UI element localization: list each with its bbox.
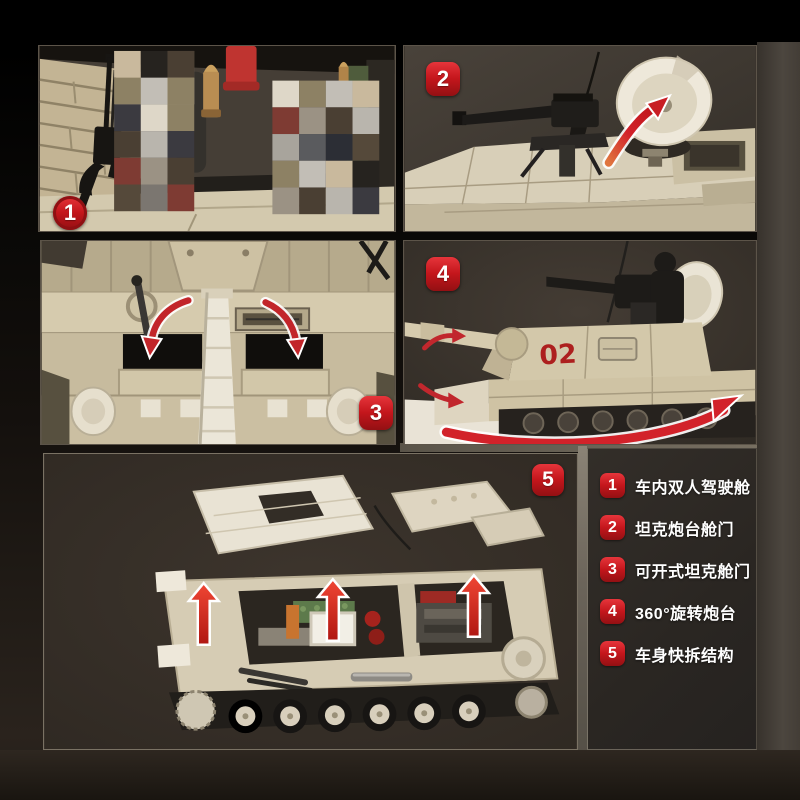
legend-item-number: 5 xyxy=(600,641,625,666)
legend-item-number: 4 xyxy=(600,599,625,624)
spare-wheel xyxy=(503,638,545,680)
legend-item-number: 3 xyxy=(600,557,625,582)
feature-panel-cockpit: 1 xyxy=(38,45,396,232)
legend-item: 4 360°旋转炮台 xyxy=(600,599,746,624)
left-shadow xyxy=(42,370,70,444)
gun-mount xyxy=(168,241,267,291)
legend-item: 3 可开式坦克舱门 xyxy=(600,557,746,582)
feature-panel-open-hatches: 3 xyxy=(40,240,396,445)
panel-1-badge: 1 xyxy=(53,196,87,230)
panel-2-badge: 2 xyxy=(426,62,460,96)
idler-wheel xyxy=(517,687,547,717)
bullet xyxy=(201,65,221,117)
legend-item: 2 坦克炮台舱门 xyxy=(600,515,746,540)
legend-item-label: 360°旋转炮台 xyxy=(635,600,736,624)
backdrop-gap-vertical xyxy=(578,446,587,752)
left-hatch-lid xyxy=(119,370,208,396)
feature-panel-hatch: 2 xyxy=(403,45,757,232)
turret-number: 02 xyxy=(539,339,578,372)
censor-mosaic xyxy=(168,51,195,104)
panel-4-badge: 4 xyxy=(426,257,460,291)
drive-sprocket xyxy=(177,691,215,729)
quick-release-illustration xyxy=(44,454,577,749)
right-hatch-lid xyxy=(242,370,329,396)
feature-panel-quick-release: 5 xyxy=(43,453,578,750)
panel-3-badge: 3 xyxy=(359,396,393,430)
legend-item-label: 车内双人驾驶舱 xyxy=(635,474,751,498)
cockpit-illustration xyxy=(39,46,395,231)
backdrop-right xyxy=(757,42,800,754)
left-roller xyxy=(71,388,115,436)
legend-item-label: 坦克炮台舱门 xyxy=(635,516,734,540)
feature-legend: 1 车内双人驾驶舱 2 坦克炮台舱门 3 可开式坦克舱门 4 360°旋转炮台 … xyxy=(587,448,757,750)
legend-item-number: 2 xyxy=(600,515,625,540)
feature-panel-rotating-turret: 02 4 xyxy=(403,240,757,445)
legend-item-label: 车身快拆结构 xyxy=(635,642,734,666)
open-hatches-illustration xyxy=(41,241,395,444)
backdrop-bottom xyxy=(0,750,800,800)
product-feature-collage: 1 xyxy=(0,0,800,800)
left-hatch-opening xyxy=(123,334,202,370)
panel-5-badge: 5 xyxy=(532,464,564,496)
legend-item-number: 1 xyxy=(600,473,625,498)
right-hatch-opening xyxy=(246,334,323,370)
red-cup xyxy=(223,46,260,91)
legend-item-label: 可开式坦克舱门 xyxy=(635,558,751,582)
legend-item: 5 车身快拆结构 xyxy=(600,641,746,666)
censor-mosaic xyxy=(272,81,379,215)
legend-item: 1 车内双人驾驶舱 xyxy=(600,473,746,498)
